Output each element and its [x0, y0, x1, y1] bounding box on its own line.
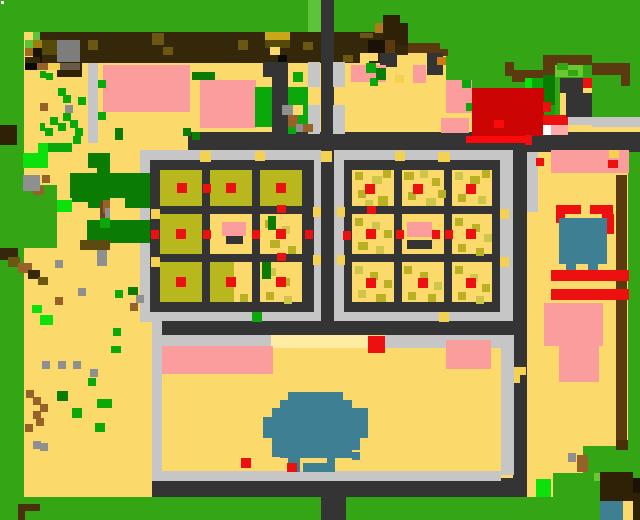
room-speckles	[420, 170, 428, 178]
sprout	[98, 112, 106, 120]
room-speckles	[270, 240, 280, 248]
red-border-marker	[368, 336, 385, 353]
door-marker-yellow	[395, 151, 405, 161]
top-wall	[25, 63, 37, 70]
white-speck	[1, 1, 4, 4]
bed	[226, 236, 243, 244]
red-barn	[543, 102, 551, 112]
door-marker-red	[305, 230, 313, 239]
door-marker-red	[151, 230, 159, 239]
room-speckles	[438, 190, 446, 198]
door-marker-red	[277, 205, 286, 213]
red-barn	[551, 125, 568, 135]
dead-tree	[385, 40, 395, 53]
room-speckles	[428, 294, 436, 302]
top-wall	[163, 47, 173, 55]
debris	[40, 404, 48, 412]
grass	[0, 497, 640, 520]
agent-marker	[276, 277, 286, 287]
agent-marker	[226, 277, 236, 287]
debris	[55, 260, 63, 268]
bed	[407, 240, 432, 249]
red-barn-roof	[472, 88, 544, 136]
debris	[88, 63, 98, 143]
water-tank-body	[559, 218, 607, 264]
debris	[73, 361, 81, 369]
corner-hut	[600, 501, 623, 520]
tree	[100, 218, 110, 228]
agent-marker	[177, 183, 187, 193]
sprout	[45, 128, 53, 136]
debris	[65, 105, 73, 113]
debris	[40, 443, 48, 451]
debris	[90, 369, 98, 377]
room-speckles	[458, 194, 466, 202]
bush	[255, 87, 272, 127]
dead-tree	[368, 40, 385, 53]
room-speckles	[458, 244, 466, 252]
room-speckles	[288, 246, 296, 254]
dead-tree	[375, 23, 383, 33]
bush	[115, 128, 123, 140]
road-overlay	[271, 335, 368, 348]
top-wall	[48, 63, 60, 70]
room-speckles	[372, 176, 382, 184]
fence	[616, 175, 627, 446]
road-overlay	[514, 367, 526, 375]
sprout	[40, 123, 45, 131]
bed-east	[407, 222, 432, 237]
room-speckles	[434, 282, 442, 290]
room-speckles	[358, 242, 368, 250]
red-stripe-lower	[551, 289, 629, 300]
door-marker-yellow	[321, 151, 332, 162]
bush	[525, 78, 532, 88]
corner-hut	[633, 493, 640, 520]
agent-marker	[466, 184, 476, 194]
door-marker-yellow	[500, 257, 509, 267]
sprout	[23, 153, 48, 168]
door-marker-red	[445, 230, 453, 239]
door-marker-yellow	[337, 207, 345, 217]
door-marker-red	[396, 230, 404, 239]
top-wall	[265, 32, 290, 40]
agent-marker	[466, 229, 476, 239]
top-wall	[37, 63, 48, 70]
top-wall	[152, 33, 164, 45]
debris	[25, 424, 33, 432]
pink-patch	[213, 346, 273, 374]
sprout	[111, 346, 121, 353]
room-speckles	[482, 170, 490, 178]
door-marker-red	[367, 206, 376, 214]
door-marker-red	[252, 230, 260, 239]
grass	[408, 0, 640, 49]
red-barn	[608, 160, 618, 168]
sprout	[73, 136, 81, 144]
bush	[395, 75, 404, 83]
door-marker-yellow	[438, 152, 450, 162]
agent-marker	[176, 229, 186, 239]
sprout	[97, 399, 112, 408]
room-speckles	[240, 294, 248, 302]
room-speckles	[476, 248, 484, 256]
sprout	[32, 305, 42, 313]
sprout	[63, 113, 71, 121]
sprout	[48, 143, 72, 152]
sprout	[50, 117, 58, 125]
courtyard-marker	[287, 463, 297, 472]
road-overlay	[162, 471, 501, 481]
debris	[78, 288, 86, 296]
room-speckles	[268, 216, 276, 230]
top-wall	[238, 40, 248, 50]
game-map-viewport[interactable]	[0, 0, 640, 520]
road-overlay	[501, 335, 514, 475]
red-stripe-upper	[551, 270, 629, 281]
pond	[288, 392, 343, 400]
pond	[263, 417, 368, 438]
agent-marker	[366, 229, 376, 239]
room-speckles	[384, 230, 392, 238]
sprout	[57, 391, 68, 401]
debris	[577, 455, 588, 472]
top-wall	[270, 47, 280, 55]
red-barn	[609, 150, 619, 158]
agent-marker	[176, 277, 186, 287]
room-speckles	[284, 296, 292, 304]
room-speckles	[482, 284, 490, 292]
room-speckles	[355, 172, 363, 180]
debris	[568, 453, 576, 462]
door-marker-yellow	[313, 207, 321, 217]
pond	[280, 400, 352, 408]
door-marker-yellow	[313, 255, 321, 265]
bush	[568, 70, 578, 76]
room-speckles	[478, 196, 486, 204]
bush	[288, 127, 296, 134]
water-tank	[590, 205, 613, 214]
sprout	[72, 408, 82, 418]
debris	[136, 295, 144, 303]
pink-patch	[544, 303, 603, 346]
pond	[272, 438, 360, 450]
sprout	[113, 328, 121, 336]
fence	[621, 63, 630, 86]
tree	[80, 240, 110, 250]
top-wall	[343, 55, 353, 62]
pink-patch	[103, 65, 190, 112]
room-speckles	[432, 178, 440, 186]
room-speckles	[455, 218, 463, 226]
bush	[532, 78, 543, 88]
door-marker-yellow	[255, 151, 265, 161]
top-wall	[42, 40, 57, 55]
agent-marker	[226, 183, 236, 193]
sprout	[63, 95, 71, 103]
corner-hut	[600, 472, 633, 493]
tree	[128, 287, 138, 295]
tree	[97, 250, 107, 266]
water-tank	[556, 205, 581, 214]
door-marker-yellow	[439, 312, 449, 322]
agent-marker	[466, 278, 476, 288]
tree	[125, 193, 150, 208]
red-barn	[583, 78, 592, 88]
pond	[303, 463, 327, 472]
bush	[303, 124, 313, 132]
sprout	[98, 80, 106, 88]
sprout	[115, 290, 123, 298]
sprout	[57, 200, 72, 212]
room-speckles	[376, 294, 386, 302]
door-marker-yellow	[151, 209, 160, 219]
pond	[280, 450, 352, 458]
grass	[583, 446, 640, 473]
grass	[592, 49, 640, 63]
agent-marker	[366, 278, 376, 288]
room-speckles	[262, 262, 271, 279]
room-speckles	[358, 290, 366, 298]
red-barn	[560, 78, 583, 93]
top-wall	[60, 63, 80, 70]
agent-marker	[365, 184, 375, 194]
road-overlay	[321, 497, 346, 520]
bush	[462, 80, 471, 88]
door-marker-yellow	[151, 257, 160, 267]
sprout	[78, 97, 86, 105]
pond	[272, 448, 281, 457]
room-speckles	[266, 292, 274, 300]
sprout	[88, 378, 96, 386]
pink-patch	[559, 346, 599, 382]
sprout	[40, 315, 53, 325]
red-barn	[543, 115, 568, 125]
bush	[192, 72, 215, 80]
room-speckles	[458, 292, 466, 300]
pond	[352, 452, 360, 460]
room-speckles	[426, 198, 436, 206]
pink-patch	[200, 80, 256, 128]
room-speckles	[383, 170, 391, 178]
bush	[288, 87, 308, 107]
door-marker-yellow	[337, 255, 345, 265]
center-path	[308, 62, 320, 87]
road-overlay	[513, 134, 527, 478]
bed-west	[222, 222, 246, 236]
corner-hut	[616, 440, 628, 450]
red-barn	[466, 136, 529, 143]
pink-patch	[441, 118, 469, 133]
corner-hut	[18, 504, 25, 520]
bush	[183, 128, 191, 136]
room-speckles	[384, 280, 392, 288]
road	[592, 117, 640, 127]
red-barn	[525, 135, 532, 145]
bush	[557, 63, 568, 70]
door-marker-yellow	[200, 151, 211, 162]
debris	[42, 175, 50, 183]
road	[188, 132, 640, 152]
dead-tree	[369, 53, 378, 61]
agent-marker	[276, 183, 286, 193]
debris	[130, 303, 138, 311]
room-speckles	[376, 246, 384, 254]
corner-hut	[623, 501, 633, 520]
dead-tree	[397, 55, 408, 65]
debris	[36, 418, 44, 426]
pink-patch	[413, 65, 426, 83]
top-wall	[25, 48, 33, 56]
room-speckles	[476, 296, 484, 304]
debris	[55, 297, 63, 305]
room-speckles	[470, 176, 480, 184]
dead-tree	[400, 23, 408, 45]
sprout	[46, 73, 53, 80]
corner-hut	[633, 478, 640, 493]
door-marker-red	[203, 184, 211, 193]
door-marker-yellow	[252, 312, 262, 322]
gray-door-block	[57, 40, 80, 62]
sprout	[58, 123, 66, 131]
bush	[543, 75, 555, 105]
top-wall	[33, 40, 42, 48]
center-path	[333, 105, 345, 134]
room-speckles	[455, 266, 463, 274]
bush	[293, 72, 303, 82]
sprout	[75, 128, 83, 136]
fence	[543, 65, 555, 75]
pond	[272, 408, 368, 417]
debris	[105, 208, 110, 218]
red-barn	[536, 158, 544, 166]
fallen-log	[38, 277, 48, 285]
door-marker-red	[432, 230, 440, 239]
debris	[58, 361, 66, 369]
top-wall	[303, 42, 313, 50]
room-speckles	[404, 266, 412, 274]
bush	[366, 63, 376, 73]
road-overlay	[152, 316, 162, 481]
grass	[628, 152, 640, 446]
door-marker-yellow	[500, 209, 509, 219]
top-wall	[88, 40, 98, 50]
bush	[192, 132, 200, 140]
courtyard-marker	[241, 458, 251, 468]
room-speckles	[355, 218, 363, 226]
road-overlay	[321, 0, 334, 337]
orange-marker	[437, 57, 446, 65]
top-wall	[278, 55, 287, 62]
room-speckles	[355, 266, 363, 274]
bush	[376, 68, 386, 80]
grass-accent	[25, 40, 33, 48]
grass-accent	[308, 0, 321, 32]
room-speckles	[404, 172, 414, 180]
debris	[40, 103, 48, 111]
center-path	[263, 62, 288, 77]
red-barn	[566, 93, 592, 117]
grass-accent	[33, 32, 40, 40]
sprout	[70, 120, 78, 128]
agent-marker	[413, 184, 423, 194]
door-marker-red	[203, 230, 211, 239]
room-speckles	[455, 172, 463, 180]
road-overlay	[158, 321, 527, 335]
debris	[42, 361, 50, 369]
door-marker-red	[277, 253, 286, 261]
room-speckles	[408, 292, 416, 300]
road-overlay	[514, 375, 520, 383]
bush	[293, 105, 303, 115]
room-speckles	[484, 234, 492, 242]
bush	[282, 105, 293, 115]
pink-patch	[446, 340, 491, 369]
sprout	[536, 479, 551, 497]
sprout	[95, 423, 105, 432]
door-marker-red	[343, 231, 351, 240]
room-speckles	[378, 196, 388, 206]
center-path	[333, 62, 345, 87]
debris	[23, 175, 40, 191]
fallen-log	[0, 125, 17, 145]
red-barn	[494, 120, 504, 128]
agent-marker	[276, 229, 286, 239]
agent-marker	[418, 278, 428, 288]
pond	[327, 458, 335, 472]
top-wall	[360, 33, 373, 38]
